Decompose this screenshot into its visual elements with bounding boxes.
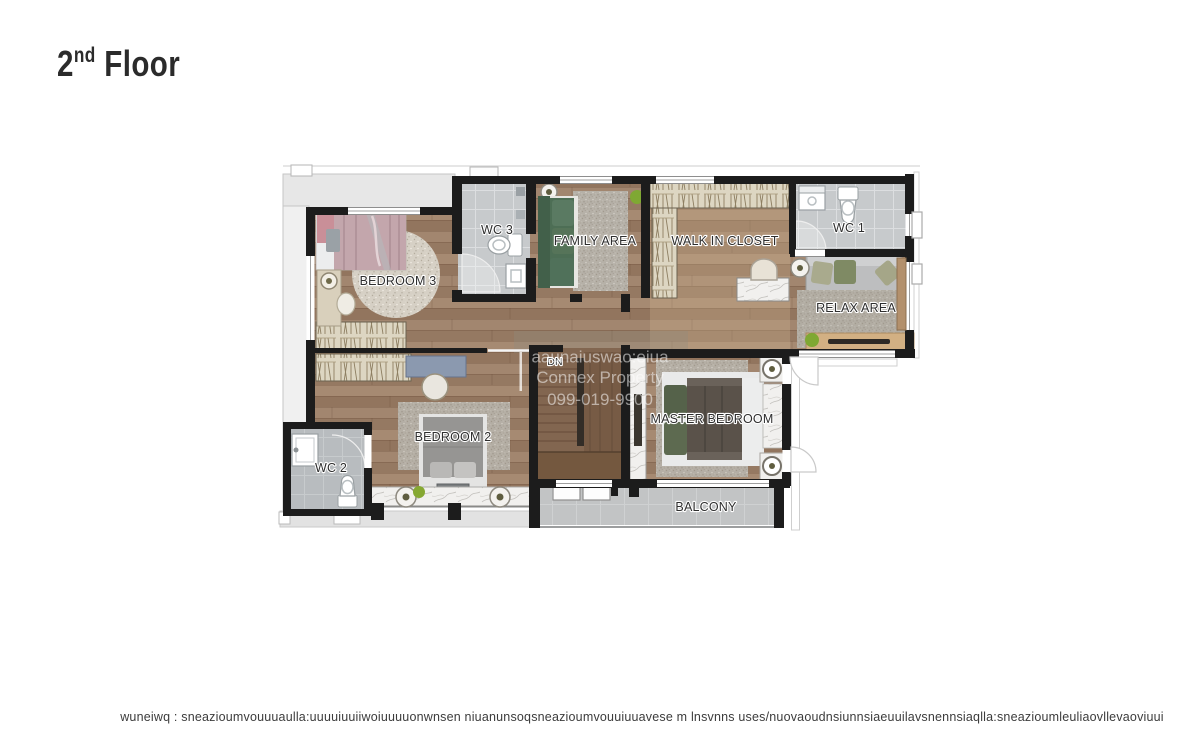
svg-text:WC 1: WC 1 — [833, 221, 865, 235]
svg-text:WC 2: WC 2 — [315, 461, 347, 475]
svg-text:099-019-9900: 099-019-9900 — [547, 390, 653, 409]
svg-text:Connex Property: Connex Property — [536, 368, 664, 387]
svg-text:WALK IN CLOSET: WALK IN CLOSET — [671, 234, 778, 248]
svg-text:BEDROOM 3: BEDROOM 3 — [360, 274, 437, 288]
svg-text:BEDROOM 2: BEDROOM 2 — [415, 430, 492, 444]
svg-text:BALCONY: BALCONY — [675, 500, 737, 514]
svg-text:RELAX AREA: RELAX AREA — [816, 301, 896, 315]
svg-text:aaunaiuswao:eiua: aaunaiuswao:eiua — [531, 348, 669, 367]
svg-text:WC 3: WC 3 — [481, 223, 513, 237]
svg-text:FAMILY AREA: FAMILY AREA — [554, 234, 637, 248]
svg-text:MASTER BEDROOM: MASTER BEDROOM — [651, 412, 774, 426]
